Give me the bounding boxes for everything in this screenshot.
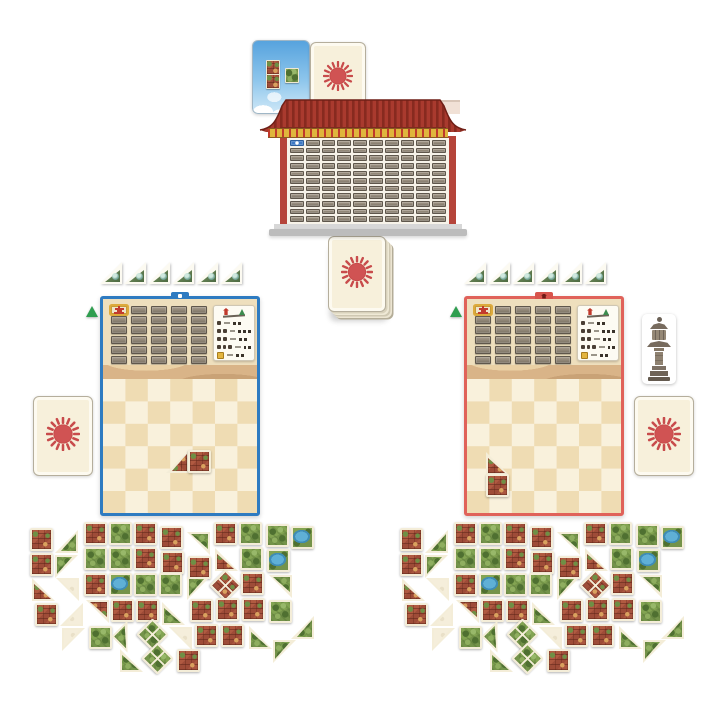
landscape-tile-triangle[interactable] bbox=[643, 640, 666, 663]
pennant-tile[interactable] bbox=[464, 262, 486, 284]
medal-icon bbox=[548, 273, 555, 280]
landscape-tile-square[interactable] bbox=[214, 522, 237, 545]
facedown-tile[interactable] bbox=[290, 209, 304, 215]
facedown-tile[interactable] bbox=[322, 148, 336, 154]
pennant-tile[interactable] bbox=[148, 262, 170, 284]
facedown-tile[interactable] bbox=[369, 155, 383, 161]
landscape-tile-square[interactable] bbox=[454, 547, 477, 570]
facedown-tile[interactable] bbox=[369, 186, 383, 192]
facedown-tile[interactable] bbox=[385, 163, 399, 169]
facedown-tile[interactable] bbox=[322, 163, 336, 169]
pennant-row-red bbox=[464, 262, 606, 284]
round-marker[interactable] bbox=[290, 140, 304, 146]
landscape-tile-square[interactable] bbox=[479, 522, 502, 545]
pennant-tile[interactable] bbox=[100, 262, 122, 284]
blank-tile-triangle[interactable] bbox=[62, 628, 85, 651]
landscape-tile-square[interactable] bbox=[611, 572, 634, 595]
facedown-tile[interactable] bbox=[369, 178, 383, 184]
facedown-tile[interactable] bbox=[353, 193, 367, 199]
facedown-tile[interactable] bbox=[401, 178, 415, 184]
facedown-tile[interactable] bbox=[401, 216, 415, 222]
landscape-tile-square[interactable] bbox=[481, 599, 504, 622]
tile-art bbox=[667, 620, 682, 637]
landscape-tile-square[interactable] bbox=[504, 573, 527, 596]
facedown-tile[interactable] bbox=[385, 216, 399, 222]
landscape-tile-square[interactable] bbox=[565, 624, 588, 647]
landscape-tile-square[interactable] bbox=[267, 549, 290, 572]
landscape-tile-square[interactable] bbox=[188, 450, 211, 473]
landscape-tile-square[interactable] bbox=[84, 573, 107, 596]
landscape-tile-square[interactable] bbox=[504, 547, 527, 570]
facedown-tile[interactable] bbox=[369, 163, 383, 169]
facedown-tile[interactable] bbox=[306, 155, 320, 161]
facedown-tile[interactable] bbox=[416, 186, 430, 192]
facedown-tile[interactable] bbox=[432, 155, 446, 161]
landscape-tile-square[interactable] bbox=[35, 603, 58, 626]
facedown-tile[interactable] bbox=[369, 201, 383, 207]
facedown-tile[interactable] bbox=[369, 148, 383, 154]
placed-tiles-red bbox=[467, 299, 621, 513]
facedown-tile[interactable] bbox=[337, 201, 351, 207]
facedown-tile[interactable] bbox=[416, 201, 430, 207]
player-board-blue[interactable] bbox=[100, 296, 260, 516]
landscape-tile-square[interactable] bbox=[454, 573, 477, 596]
facedown-tile[interactable] bbox=[385, 193, 399, 199]
facedown-tile[interactable] bbox=[353, 216, 367, 222]
landscape-tile-square[interactable] bbox=[84, 547, 107, 570]
facedown-tile[interactable] bbox=[369, 209, 383, 215]
pennant-tile[interactable] bbox=[584, 262, 606, 284]
landscape-tile-square[interactable] bbox=[159, 573, 182, 596]
facedown-tile[interactable] bbox=[432, 171, 446, 177]
facedown-tile[interactable] bbox=[369, 193, 383, 199]
landscape-tile-square[interactable] bbox=[610, 547, 633, 570]
landscape-tile-square[interactable] bbox=[506, 599, 529, 622]
sun-icon bbox=[341, 256, 373, 293]
facedown-tile[interactable] bbox=[416, 171, 430, 177]
landscape-tile-triangle[interactable] bbox=[402, 578, 425, 601]
tile-art bbox=[436, 607, 451, 624]
facedown-tile[interactable] bbox=[432, 216, 446, 222]
facedown-tile[interactable] bbox=[385, 201, 399, 207]
tile-art bbox=[64, 630, 79, 647]
landscape-tile-triangle[interactable] bbox=[187, 577, 210, 600]
landscape-tile-square[interactable] bbox=[242, 598, 265, 621]
tile-art bbox=[488, 458, 505, 473]
facedown-tile[interactable] bbox=[385, 148, 399, 154]
player-board-red[interactable] bbox=[464, 296, 624, 516]
landscape-tile-triangle[interactable] bbox=[661, 616, 684, 639]
facedown-tile[interactable] bbox=[306, 171, 320, 177]
facedown-tile[interactable] bbox=[337, 155, 351, 161]
landscape-tile-square[interactable] bbox=[240, 547, 263, 570]
tile-market-board[interactable] bbox=[280, 136, 456, 224]
facedown-tile[interactable] bbox=[290, 163, 304, 169]
medal-icon bbox=[208, 273, 215, 280]
start-marker-blue[interactable] bbox=[86, 306, 98, 317]
tile-cross bbox=[212, 572, 239, 599]
facedown-tile[interactable] bbox=[337, 178, 351, 184]
landscape-tile-square[interactable] bbox=[177, 649, 200, 672]
facedown-tile[interactable] bbox=[353, 163, 367, 169]
sun-card-deck[interactable] bbox=[328, 236, 386, 312]
facedown-tile[interactable] bbox=[416, 178, 430, 184]
tile-art bbox=[172, 454, 187, 471]
facedown-tile[interactable] bbox=[337, 148, 351, 154]
facedown-tile[interactable] bbox=[337, 186, 351, 192]
facedown-tile[interactable] bbox=[322, 171, 336, 177]
sun-card-blue-player[interactable] bbox=[33, 396, 93, 476]
tile-art bbox=[34, 584, 51, 599]
tile-art bbox=[114, 626, 137, 649]
landscape-tile-square[interactable] bbox=[134, 573, 157, 596]
blank-tile-triangle[interactable] bbox=[169, 627, 192, 650]
landscape-tile-triangle[interactable] bbox=[166, 450, 189, 473]
mini-tile-chip bbox=[266, 74, 280, 89]
facedown-tile[interactable] bbox=[369, 171, 383, 177]
landscape-tile-triangle[interactable] bbox=[490, 649, 513, 672]
pennant-row-blue bbox=[100, 262, 242, 284]
facedown-tile[interactable] bbox=[306, 216, 320, 222]
facedown-tile[interactable] bbox=[416, 148, 430, 154]
roof-gold-trim bbox=[268, 128, 448, 138]
landscape-tile-triangle[interactable] bbox=[55, 530, 78, 553]
medal-icon bbox=[160, 273, 167, 280]
tile-art bbox=[57, 557, 72, 574]
facedown-tile[interactable] bbox=[306, 148, 320, 154]
landscape-tile-triangle[interactable] bbox=[425, 530, 448, 553]
landscape-tile-square[interactable] bbox=[30, 553, 53, 576]
tile-art bbox=[60, 580, 77, 595]
tile-art bbox=[297, 620, 312, 637]
tile-art bbox=[534, 608, 551, 623]
facedown-tile[interactable] bbox=[337, 209, 351, 215]
tile-art bbox=[189, 579, 204, 596]
landscape-tile-square[interactable] bbox=[584, 522, 607, 545]
landscape-tile-square[interactable] bbox=[529, 573, 552, 596]
stone-pagoda-standee[interactable] bbox=[642, 314, 676, 384]
facedown-tile[interactable] bbox=[353, 178, 367, 184]
facedown-tile[interactable] bbox=[401, 148, 415, 154]
blank-tile-triangle[interactable] bbox=[430, 603, 453, 626]
landscape-tile-triangle[interactable] bbox=[532, 602, 555, 625]
landscape-tile-triangle[interactable] bbox=[557, 577, 580, 600]
tab-dot bbox=[178, 294, 182, 298]
facedown-tile[interactable] bbox=[290, 171, 304, 177]
pennant-tile[interactable] bbox=[172, 262, 194, 284]
landscape-tile-square[interactable] bbox=[486, 474, 509, 497]
facedown-tile[interactable] bbox=[353, 140, 367, 146]
tile-art bbox=[434, 630, 449, 647]
statue-finial bbox=[657, 317, 662, 322]
landscape-tile-square[interactable] bbox=[269, 600, 292, 623]
blank-tile-triangle[interactable] bbox=[56, 578, 79, 601]
mini-tile-chip bbox=[266, 60, 280, 75]
landscape-tile-triangle[interactable] bbox=[209, 569, 242, 602]
landscape-tile-square[interactable] bbox=[109, 547, 132, 570]
landscape-tile-square[interactable] bbox=[190, 599, 213, 622]
landscape-tile-square[interactable] bbox=[530, 526, 553, 549]
landscape-tile-square[interactable] bbox=[560, 599, 583, 622]
pennant-tile[interactable] bbox=[124, 262, 146, 284]
landscape-tile-square[interactable] bbox=[241, 572, 264, 595]
tile-art bbox=[431, 534, 446, 551]
landscape-tile-triangle[interactable] bbox=[249, 626, 272, 649]
facedown-tile[interactable] bbox=[290, 193, 304, 199]
landscape-tile-triangle[interactable] bbox=[585, 548, 608, 571]
landscape-tile-triangle[interactable] bbox=[579, 569, 612, 602]
tile-art bbox=[492, 655, 509, 670]
tile-art bbox=[217, 554, 234, 569]
landscape-tile-triangle[interactable] bbox=[215, 548, 238, 571]
facedown-tile[interactable] bbox=[306, 201, 320, 207]
landscape-tile-square[interactable] bbox=[111, 599, 134, 622]
facedown-tile[interactable] bbox=[322, 201, 336, 207]
medal-icon bbox=[572, 273, 579, 280]
facedown-tile[interactable] bbox=[337, 140, 351, 146]
facedown-tile[interactable] bbox=[385, 178, 399, 184]
tile-art bbox=[643, 577, 660, 592]
facedown-tile[interactable] bbox=[369, 216, 383, 222]
tile-art bbox=[61, 534, 76, 551]
market-base bbox=[269, 229, 467, 236]
landscape-tile-square[interactable] bbox=[136, 599, 159, 622]
landscape-tile-square[interactable] bbox=[30, 528, 53, 551]
facedown-tile[interactable] bbox=[432, 148, 446, 154]
landscape-tile-square[interactable] bbox=[109, 573, 132, 596]
pennant-tile[interactable] bbox=[536, 262, 558, 284]
facedown-tile[interactable] bbox=[432, 193, 446, 199]
tile-art bbox=[273, 577, 290, 592]
landscape-tile-triangle[interactable] bbox=[639, 575, 662, 598]
landscape-tile-square[interactable] bbox=[591, 624, 614, 647]
facedown-tile[interactable] bbox=[322, 216, 336, 222]
landscape-tile-triangle[interactable] bbox=[32, 578, 55, 601]
facedown-tile[interactable] bbox=[416, 155, 430, 161]
landscape-tile-square[interactable] bbox=[405, 603, 428, 626]
sun-icon bbox=[647, 417, 681, 456]
medal-icon bbox=[232, 273, 239, 280]
facedown-tile[interactable] bbox=[337, 193, 351, 199]
sun-card-red-player[interactable] bbox=[634, 396, 694, 476]
tile-art bbox=[587, 554, 604, 569]
blank-tile-triangle[interactable] bbox=[426, 578, 449, 601]
pennant-tile[interactable] bbox=[220, 262, 242, 284]
market-tile-grid bbox=[290, 140, 446, 222]
landscape-tile-square[interactable] bbox=[586, 598, 609, 621]
pennant-tile[interactable] bbox=[512, 262, 534, 284]
facedown-tile[interactable] bbox=[290, 186, 304, 192]
facedown-tile[interactable] bbox=[432, 178, 446, 184]
landscape-tile-square[interactable] bbox=[84, 522, 107, 545]
facedown-tile[interactable] bbox=[416, 163, 430, 169]
tile-art bbox=[427, 557, 442, 574]
facedown-tile[interactable] bbox=[416, 209, 430, 215]
start-marker-red[interactable] bbox=[450, 306, 462, 317]
tile-cross bbox=[514, 645, 541, 672]
pennant-tile[interactable] bbox=[560, 262, 582, 284]
facedown-tile[interactable] bbox=[306, 193, 320, 199]
facedown-tile[interactable] bbox=[353, 209, 367, 215]
facedown-tile[interactable] bbox=[353, 155, 367, 161]
landscape-tile-square[interactable] bbox=[89, 626, 112, 649]
facedown-tile[interactable] bbox=[322, 140, 336, 146]
landscape-tile-square[interactable] bbox=[459, 626, 482, 649]
facedown-tile[interactable] bbox=[322, 193, 336, 199]
landscape-tile-square[interactable] bbox=[636, 524, 659, 547]
landscape-tile-square[interactable] bbox=[639, 600, 662, 623]
facedown-tile[interactable] bbox=[290, 148, 304, 154]
facedown-tile[interactable] bbox=[416, 216, 430, 222]
landscape-tile-square[interactable] bbox=[504, 522, 527, 545]
pennant-tile[interactable] bbox=[196, 262, 218, 284]
facedown-tile[interactable] bbox=[385, 155, 399, 161]
landscape-tile-square[interactable] bbox=[609, 522, 632, 545]
facedown-tile[interactable] bbox=[306, 186, 320, 192]
facedown-tile[interactable] bbox=[401, 163, 415, 169]
landscape-tile-triangle[interactable] bbox=[291, 616, 314, 639]
landscape-tile-square[interactable] bbox=[266, 524, 289, 547]
landscape-tile-square[interactable] bbox=[612, 598, 635, 621]
landscape-tile-triangle[interactable] bbox=[162, 602, 185, 625]
medal-icon bbox=[136, 273, 143, 280]
facedown-tile[interactable] bbox=[290, 178, 304, 184]
facedown-tile[interactable] bbox=[401, 209, 415, 215]
facedown-tile[interactable] bbox=[306, 178, 320, 184]
landscape-tile-square[interactable] bbox=[661, 526, 684, 549]
facedown-tile[interactable] bbox=[385, 171, 399, 177]
facedown-tile[interactable] bbox=[432, 201, 446, 207]
landscape-tile-square[interactable] bbox=[109, 522, 132, 545]
landscape-tile-square[interactable] bbox=[479, 573, 502, 596]
landscape-tile-triangle[interactable] bbox=[557, 532, 580, 555]
facedown-tile[interactable] bbox=[353, 201, 367, 207]
landscape-tile-square[interactable] bbox=[547, 649, 570, 672]
landscape-tile-square[interactable] bbox=[239, 522, 262, 545]
landscape-tile-triangle[interactable] bbox=[456, 600, 479, 623]
facedown-tile[interactable] bbox=[432, 186, 446, 192]
landscape-tile-square[interactable] bbox=[558, 556, 581, 579]
tile-art bbox=[275, 642, 290, 659]
tile-cross bbox=[144, 645, 171, 672]
landscape-tile-triangle[interactable] bbox=[269, 575, 292, 598]
facedown-tile[interactable] bbox=[385, 140, 399, 146]
player-zone-red bbox=[448, 260, 644, 520]
tile-cross bbox=[509, 621, 536, 648]
tile-art bbox=[66, 607, 81, 624]
landscape-tile-triangle[interactable] bbox=[619, 626, 642, 649]
facedown-tile[interactable] bbox=[432, 209, 446, 215]
facedown-tile[interactable] bbox=[290, 155, 304, 161]
tile-cross bbox=[582, 572, 609, 599]
landscape-tile-square[interactable] bbox=[531, 551, 554, 574]
landscape-tile-triangle[interactable] bbox=[187, 532, 210, 555]
tile-pile-left bbox=[28, 520, 328, 680]
landscape-tile-square[interactable] bbox=[195, 624, 218, 647]
player-zone-blue bbox=[84, 260, 280, 520]
facedown-tile[interactable] bbox=[385, 186, 399, 192]
landscape-tile-square[interactable] bbox=[637, 549, 660, 572]
facedown-tile[interactable] bbox=[306, 163, 320, 169]
tile-art bbox=[430, 580, 447, 595]
facedown-tile[interactable] bbox=[306, 209, 320, 215]
landscape-tile-square[interactable] bbox=[216, 598, 239, 621]
landscape-tile-square[interactable] bbox=[291, 526, 314, 549]
placed-tiles-blue bbox=[103, 299, 257, 513]
landscape-tile-square[interactable] bbox=[221, 624, 244, 647]
blank-tile-triangle[interactable] bbox=[539, 627, 562, 650]
facedown-tile[interactable] bbox=[401, 193, 415, 199]
facedown-tile[interactable] bbox=[401, 155, 415, 161]
facedown-tile[interactable] bbox=[416, 140, 430, 146]
landscape-tile-triangle[interactable] bbox=[55, 555, 78, 578]
facedown-tile[interactable] bbox=[353, 186, 367, 192]
landscape-tile-triangle[interactable] bbox=[273, 640, 296, 663]
pagoda-icon bbox=[541, 294, 547, 299]
facedown-tile[interactable] bbox=[322, 186, 336, 192]
facedown-tile[interactable] bbox=[322, 178, 336, 184]
landscape-tile-square[interactable] bbox=[400, 528, 423, 551]
facedown-tile[interactable] bbox=[401, 140, 415, 146]
sun-icon bbox=[323, 61, 353, 96]
landscape-tile-triangle[interactable] bbox=[486, 452, 509, 475]
landscape-tile-triangle[interactable] bbox=[120, 649, 143, 672]
landscape-tile-square[interactable] bbox=[400, 553, 423, 576]
mini-tile-chip bbox=[285, 68, 299, 83]
facedown-tile[interactable] bbox=[337, 171, 351, 177]
facedown-tile[interactable] bbox=[401, 201, 415, 207]
landscape-tile-triangle[interactable] bbox=[511, 642, 544, 675]
landscape-tile-triangle[interactable] bbox=[141, 642, 174, 675]
medal-icon bbox=[596, 273, 603, 280]
facedown-tile[interactable] bbox=[369, 140, 383, 146]
facedown-tile[interactable] bbox=[322, 155, 336, 161]
facedown-tile[interactable] bbox=[401, 186, 415, 192]
facedown-tile[interactable] bbox=[353, 171, 367, 177]
facedown-tile[interactable] bbox=[353, 148, 367, 154]
facedown-tile[interactable] bbox=[290, 201, 304, 207]
landscape-tile-square[interactable] bbox=[134, 522, 157, 545]
facedown-tile[interactable] bbox=[306, 140, 320, 146]
facedown-tile[interactable] bbox=[385, 209, 399, 215]
landscape-tile-triangle[interactable] bbox=[425, 555, 448, 578]
facedown-tile[interactable] bbox=[337, 163, 351, 169]
tile-art bbox=[173, 629, 190, 644]
tile-art bbox=[621, 632, 638, 647]
landscape-tile-square[interactable] bbox=[160, 526, 183, 549]
landscape-tile-square[interactable] bbox=[134, 547, 157, 570]
landscape-tile-triangle[interactable] bbox=[86, 600, 109, 623]
landscape-tile-square[interactable] bbox=[479, 547, 502, 570]
facedown-tile[interactable] bbox=[322, 209, 336, 215]
blank-tile-triangle[interactable] bbox=[60, 603, 83, 626]
landscape-tile-square[interactable] bbox=[188, 556, 211, 579]
facedown-tile[interactable] bbox=[432, 163, 446, 169]
facedown-tile[interactable] bbox=[337, 216, 351, 222]
landscape-tile-square[interactable] bbox=[454, 522, 477, 545]
facedown-tile[interactable] bbox=[401, 171, 415, 177]
tile-art bbox=[90, 602, 107, 617]
tile-art bbox=[191, 534, 208, 549]
landscape-tile-square[interactable] bbox=[161, 551, 184, 574]
pennant-tile[interactable] bbox=[488, 262, 510, 284]
facedown-tile[interactable] bbox=[432, 140, 446, 146]
facedown-tile[interactable] bbox=[290, 216, 304, 222]
blank-tile-triangle[interactable] bbox=[432, 628, 455, 651]
tile-art bbox=[561, 534, 578, 549]
facedown-tile[interactable] bbox=[416, 193, 430, 199]
tile-art bbox=[460, 602, 477, 617]
